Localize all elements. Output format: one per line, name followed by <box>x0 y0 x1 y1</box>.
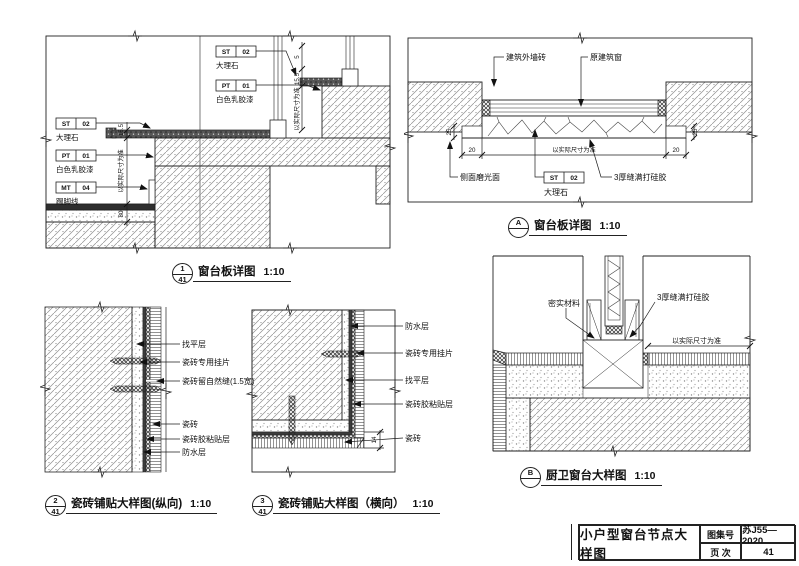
detail-scale: 1:10 <box>190 498 211 510</box>
dim-80: 80 <box>118 210 125 217</box>
detail-A-drawing: 建筑外墙砖 原建筑窗 侧面磨光面 3厚缝满打硅胶 大理石 ST 02 20 以实… <box>404 26 768 212</box>
badge-number: B <box>521 468 540 479</box>
label-clip: 瓷砖专用挂片 <box>405 348 453 358</box>
detail-title-text: 窗台板详图1:10 <box>193 265 291 282</box>
label-white-paint: 白色乳胶漆 <box>56 164 94 174</box>
page-number-label: 页 次 <box>700 543 741 561</box>
detail-B-drawing: 密实材料 3厚缝满打硅胶 以实际尺寸为准 <box>480 246 782 462</box>
sheet-title: 小户型窗台节点大样图 <box>579 525 700 561</box>
detail-2-title: 2 41 瓷砖铺贴大样图(纵向)1:10 <box>40 495 264 516</box>
label-adhesive: 瓷砖胶粘贴层 <box>182 434 230 444</box>
tag-st-code: ST <box>62 121 70 128</box>
detail-1-badge: 1 41 <box>172 263 193 284</box>
detail-1-drawing: ST 02 PT 01 MT 04 ST 02 PT 01 大理石 白色乳胶漆 … <box>40 26 402 258</box>
dim-actual-size: 以实际尺寸为准 <box>672 336 721 345</box>
label-side-polish: 侧面磨光面 <box>460 172 500 182</box>
detail-2-badge: 2 41 <box>45 495 66 516</box>
label-tile: 瓷砖 <box>182 419 198 429</box>
label-leveling: 找平层 <box>182 339 206 349</box>
label-ext-wall-tile: 建筑外墙砖 <box>506 52 546 62</box>
tag-st-no: 02 <box>242 49 250 56</box>
badge-sheet: 41 <box>173 275 192 285</box>
detail-title: 瓷砖铺贴大样图(纵向) <box>71 498 182 510</box>
label-waterproof: 防水层 <box>182 447 206 457</box>
detail-3-drawing: 防水层 瓷砖专用挂片 找平层 瓷砖胶粘贴层 瓷砖 14 <box>245 292 475 490</box>
detail-3-badge: 3 41 <box>252 495 273 516</box>
label-waterproof: 防水层 <box>405 321 429 331</box>
drawing-sheet: ST 02 PT 01 MT 04 ST 02 PT 01 大理石 白色乳胶漆 … <box>0 0 799 566</box>
badge-number: 3 <box>253 496 272 507</box>
label-filler: 密实材料 <box>548 298 580 308</box>
detail-scale: 1:10 <box>264 266 285 278</box>
label-tile: 瓷砖 <box>405 433 421 443</box>
page-number-value: 41 <box>741 543 796 561</box>
tag-pt-code: PT <box>222 83 230 90</box>
badge-number: 2 <box>46 496 65 507</box>
detail-3-figure: 防水层 瓷砖专用挂片 找平层 瓷砖胶粘贴层 瓷砖 14 3 41 瓷砖铺贴大样图… <box>245 292 475 526</box>
detail-A-title: A 窗台板详图1:10 <box>404 217 768 238</box>
dim-actual-size: 以实际尺寸为准 <box>293 87 301 130</box>
title-block: 小户型窗台节点大样图 图集号 苏J55—2020 页 次 41 <box>578 524 795 560</box>
dim-15.5: 15.5 <box>118 123 125 136</box>
label-orig-window: 原建筑窗 <box>590 52 622 62</box>
tag-pt-no: 01 <box>242 83 250 90</box>
detail-title: 厨卫窗台大样图 <box>546 470 627 482</box>
detail-title: 窗台板详图 <box>534 220 592 232</box>
detail-A-figure: 建筑外墙砖 原建筑窗 侧面磨光面 3厚缝满打硅胶 大理石 ST 02 20 以实… <box>404 26 768 248</box>
detail-1-title: 1 41 窗台板详图1:10 <box>40 263 402 284</box>
badge-sheet: 41 <box>46 507 65 517</box>
dim-actual-size: 以实际尺寸为准 <box>117 149 125 192</box>
detail-B-figure: 密实材料 3厚缝满打硅胶 以实际尺寸为准 B 厨卫窗台大样图1:10 <box>480 246 782 500</box>
label-adhesive: 瓷砖胶粘贴层 <box>405 399 453 409</box>
dim-15.5: 15.5 <box>294 72 301 85</box>
label-skirting: 踢脚线 <box>56 196 79 206</box>
tag-st-code: ST <box>550 175 558 182</box>
dB-leaders <box>566 302 750 346</box>
badge-sheet <box>509 229 528 239</box>
label-white-paint: 白色乳胶漆 <box>216 94 254 104</box>
badge-number: 1 <box>173 264 192 275</box>
dim-25: 25 <box>692 128 699 135</box>
dim-14: 14 <box>371 436 378 443</box>
detail-title: 瓷砖铺贴大样图（横向） <box>278 498 405 510</box>
detail-title: 窗台板详图 <box>198 266 256 278</box>
label-sealant: 3厚缝满打硅胶 <box>614 172 666 182</box>
detail-B-badge: B <box>520 467 541 488</box>
d2-texts: 找平层 瓷砖专用挂片 瓷砖留自然缝(1.5宽) 瓷砖 瓷砖胶粘贴层 防水层 <box>182 339 255 457</box>
detail-title-text: 瓷砖铺贴大样图(纵向)1:10 <box>66 497 217 514</box>
atlas-number-label: 图集号 <box>700 525 741 543</box>
detail-1-figure: ST 02 PT 01 MT 04 ST 02 PT 01 大理石 白色乳胶漆 … <box>40 26 402 306</box>
tag-pt-no: 01 <box>82 153 90 160</box>
badge-number: A <box>509 218 528 229</box>
label-clip: 瓷砖专用挂片 <box>182 357 230 367</box>
label-marble: 大理石 <box>216 60 239 70</box>
detail-2-drawing: 找平层 瓷砖专用挂片 瓷砖留自然缝(1.5宽) 瓷砖 瓷砖胶粘贴层 防水层 <box>40 292 264 490</box>
detail-title-text: 厨卫窗台大样图1:10 <box>541 469 662 486</box>
tag-pt-code: PT <box>62 153 70 160</box>
label-marble: 大理石 <box>544 187 568 197</box>
dim-20: 20 <box>469 147 476 154</box>
tag-st-no: 02 <box>82 121 90 128</box>
dim-25: 25 <box>446 128 453 135</box>
badge-sheet: 41 <box>253 507 272 517</box>
label-leveling: 找平层 <box>405 375 429 385</box>
label-marble: 大理石 <box>56 132 79 142</box>
detail-scale: 1:10 <box>413 498 434 510</box>
tag-mt-no: 04 <box>82 185 90 192</box>
detail-title-text: 瓷砖铺贴大样图（横向）1:10 <box>273 497 440 514</box>
tag-st-code: ST <box>222 49 230 56</box>
detail-A-badge: A <box>508 217 529 238</box>
badge-sheet <box>521 479 540 489</box>
dim-20: 20 <box>673 147 680 154</box>
dim-5: 5 <box>294 55 301 59</box>
detail-3-title: 3 41 瓷砖铺贴大样图（横向）1:10 <box>245 495 475 516</box>
detail-scale: 1:10 <box>635 470 656 482</box>
detail-2-figure: 找平层 瓷砖专用挂片 瓷砖留自然缝(1.5宽) 瓷砖 瓷砖胶粘贴层 防水层 2 … <box>40 292 264 526</box>
label-seam: 瓷砖留自然缝(1.5宽) <box>182 376 255 386</box>
atlas-number-value: 苏J55—2020 <box>741 525 796 543</box>
detail-B-title: B 厨卫窗台大样图1:10 <box>480 467 782 488</box>
label-sealant: 3厚缝满打硅胶 <box>657 292 709 302</box>
sheet-frame-line <box>571 524 572 560</box>
dim-actual-size: 以实际尺寸为准 <box>552 146 595 154</box>
d3-texts: 防水层 瓷砖专用挂片 找平层 瓷砖胶粘贴层 瓷砖 <box>405 321 453 443</box>
d3-dims: 14 <box>371 436 378 443</box>
tag-st-no: 02 <box>570 175 578 182</box>
tag-mt-code: MT <box>61 185 70 192</box>
detail-scale: 1:10 <box>600 220 621 232</box>
detail-title-text: 窗台板详图1:10 <box>529 219 627 236</box>
